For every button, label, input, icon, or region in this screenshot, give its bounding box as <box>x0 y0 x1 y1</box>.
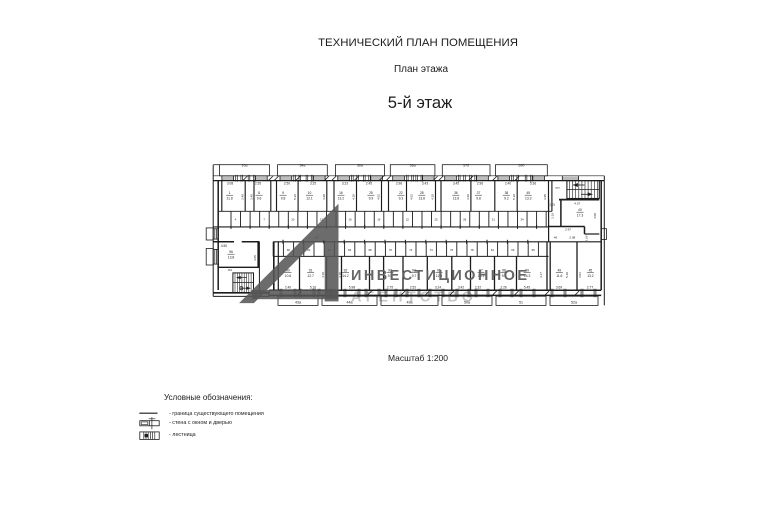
svg-text:10: 10 <box>291 218 295 222</box>
svg-text:3.69: 3.69 <box>556 286 562 290</box>
svg-text:4: 4 <box>235 218 237 222</box>
svg-text:2.96: 2.96 <box>477 181 483 185</box>
svg-text:9: 9 <box>282 191 284 195</box>
svg-text:45: 45 <box>526 191 530 195</box>
svg-text:5.49: 5.49 <box>565 272 569 278</box>
svg-text:2.08: 2.08 <box>569 236 575 240</box>
svg-text:17.3: 17.3 <box>577 213 584 217</box>
svg-text:2.96: 2.96 <box>396 181 402 185</box>
svg-text:13.8: 13.8 <box>419 196 426 200</box>
svg-text:76: 76 <box>450 248 454 252</box>
svg-text:16: 16 <box>349 218 353 222</box>
svg-text:10: 10 <box>308 191 312 195</box>
svg-text:X01: X01 <box>228 268 233 272</box>
svg-text:5.16: 5.16 <box>310 286 316 290</box>
svg-text:30а: 30а <box>357 164 363 168</box>
svg-text:57б: 57б <box>463 164 469 168</box>
svg-text:13.8: 13.8 <box>228 255 235 259</box>
svg-text:59б: 59б <box>518 164 524 168</box>
svg-text:3.01: 3.01 <box>578 272 582 278</box>
svg-text:10а: 10а <box>242 164 248 168</box>
svg-text:3.42: 3.42 <box>458 286 464 290</box>
svg-text:96: 96 <box>229 250 233 254</box>
svg-text:49а: 49а <box>407 300 413 304</box>
svg-text:28: 28 <box>420 191 424 195</box>
svg-text:4.10: 4.10 <box>321 272 325 278</box>
svg-text:3.08: 3.08 <box>227 181 233 185</box>
svg-text:4.57: 4.57 <box>574 202 580 206</box>
svg-text:3.05: 3.05 <box>253 255 257 261</box>
svg-text:13.2: 13.2 <box>587 274 594 278</box>
svg-text:12.7: 12.7 <box>307 274 314 278</box>
svg-text:4.17: 4.17 <box>539 272 543 278</box>
svg-text:66: 66 <box>348 248 352 252</box>
svg-text:2.55: 2.55 <box>255 181 261 185</box>
svg-text:43а: 43а <box>295 300 301 304</box>
svg-text:45: 45 <box>589 268 593 272</box>
svg-text:36: 36 <box>454 191 458 195</box>
svg-text:4.08: 4.08 <box>593 213 597 219</box>
svg-text:1.31: 1.31 <box>549 202 555 206</box>
svg-text:40: 40 <box>578 208 582 212</box>
svg-text:60: 60 <box>287 248 291 252</box>
svg-text:хол: хол <box>555 186 560 190</box>
svg-text:44а: 44а <box>347 300 353 304</box>
svg-text:38: 38 <box>505 191 509 195</box>
svg-text:3.24: 3.24 <box>435 286 441 290</box>
svg-text:9.8: 9.8 <box>476 196 481 200</box>
svg-text:8: 8 <box>258 191 260 195</box>
svg-text:3.43: 3.43 <box>422 181 428 185</box>
svg-text:92: 92 <box>344 268 348 272</box>
svg-text:10.6: 10.6 <box>285 274 292 278</box>
svg-text:2.45: 2.45 <box>366 181 372 185</box>
svg-text:52а: 52а <box>571 300 577 304</box>
svg-text:13.3: 13.3 <box>525 196 532 200</box>
svg-text:1: 1 <box>229 191 231 195</box>
svg-text:25: 25 <box>369 191 373 195</box>
svg-text:5.10: 5.10 <box>512 194 516 200</box>
svg-text:91: 91 <box>309 268 313 272</box>
svg-text:4.20: 4.20 <box>431 194 435 200</box>
svg-text:65: 65 <box>532 248 536 252</box>
svg-text:72: 72 <box>409 248 413 252</box>
svg-text:19: 19 <box>377 218 381 222</box>
svg-text:13.2: 13.2 <box>338 196 345 200</box>
svg-text:ИНВЕСТИЦИОННОЕ: ИНВЕСТИЦИОННОЕ <box>351 268 527 284</box>
svg-text:4.10: 4.10 <box>338 272 342 278</box>
svg-text:28: 28 <box>463 218 467 222</box>
svg-text:4.20: 4.20 <box>466 194 470 200</box>
svg-text:2.52: 2.52 <box>410 286 416 290</box>
svg-text:2.40: 2.40 <box>505 181 511 185</box>
svg-text:78: 78 <box>470 248 474 252</box>
svg-text:2.97: 2.97 <box>565 227 571 231</box>
svg-text:31: 31 <box>492 218 496 222</box>
svg-text:9.3: 9.3 <box>399 196 404 200</box>
svg-text:7: 7 <box>263 218 265 222</box>
svg-text:68: 68 <box>368 248 372 252</box>
svg-text:3.19: 3.19 <box>551 213 555 219</box>
svg-text:13.8: 13.8 <box>453 196 460 200</box>
svg-text:2.32: 2.32 <box>475 286 481 290</box>
svg-text:9.9: 9.9 <box>369 196 374 200</box>
svg-text:3.23: 3.23 <box>342 181 348 185</box>
svg-text:37: 37 <box>477 191 481 195</box>
svg-text:4.02: 4.02 <box>409 194 413 200</box>
svg-text:5.36: 5.36 <box>293 194 297 200</box>
svg-text:2.75: 2.75 <box>387 286 393 290</box>
svg-text:49: 49 <box>557 268 561 272</box>
svg-text:9.6: 9.6 <box>257 196 262 200</box>
svg-text:34а: 34а <box>299 164 305 168</box>
svg-text:2.26: 2.26 <box>500 286 506 290</box>
svg-text:3.45: 3.45 <box>453 181 459 185</box>
svg-text:3.95: 3.95 <box>543 194 547 200</box>
svg-text:2.50: 2.50 <box>284 181 290 185</box>
svg-text:25: 25 <box>434 218 438 222</box>
svg-text:5.98: 5.98 <box>349 286 355 290</box>
svg-text:4.28: 4.28 <box>322 194 326 200</box>
svg-text:34: 34 <box>520 218 524 222</box>
svg-text:14.2: 14.2 <box>342 274 349 278</box>
svg-text:1.06: 1.06 <box>585 235 589 241</box>
svg-text:22: 22 <box>399 191 403 195</box>
svg-text:61: 61 <box>491 248 495 252</box>
svg-text:9.2: 9.2 <box>504 196 509 200</box>
svg-text:16: 16 <box>339 191 343 195</box>
svg-text:2.40: 2.40 <box>285 286 291 290</box>
svg-text:51: 51 <box>519 300 523 304</box>
svg-text:9.8: 9.8 <box>281 196 286 200</box>
svg-text:4.30: 4.30 <box>352 194 356 200</box>
svg-text:22: 22 <box>406 218 410 222</box>
svg-text:3.45: 3.45 <box>249 194 253 200</box>
svg-text:4.50: 4.50 <box>221 244 227 248</box>
svg-text:70: 70 <box>389 248 393 252</box>
svg-text:12.1: 12.1 <box>306 196 313 200</box>
svg-text:11.8: 11.8 <box>227 196 233 200</box>
svg-text:50а: 50а <box>464 300 470 304</box>
svg-text:36а: 36а <box>410 164 416 168</box>
svg-text:11.6: 11.6 <box>556 274 562 278</box>
svg-text:5.45: 5.45 <box>524 286 530 290</box>
svg-text:63: 63 <box>511 248 515 252</box>
svg-text:5.36: 5.36 <box>530 181 536 185</box>
svg-text:46: 46 <box>554 236 558 240</box>
svg-text:3.25: 3.25 <box>310 181 316 185</box>
svg-text:74: 74 <box>430 248 434 252</box>
svg-text:3.40: 3.40 <box>241 194 245 200</box>
svg-text:4.02: 4.02 <box>377 194 381 200</box>
svg-text:2.77: 2.77 <box>587 286 593 290</box>
